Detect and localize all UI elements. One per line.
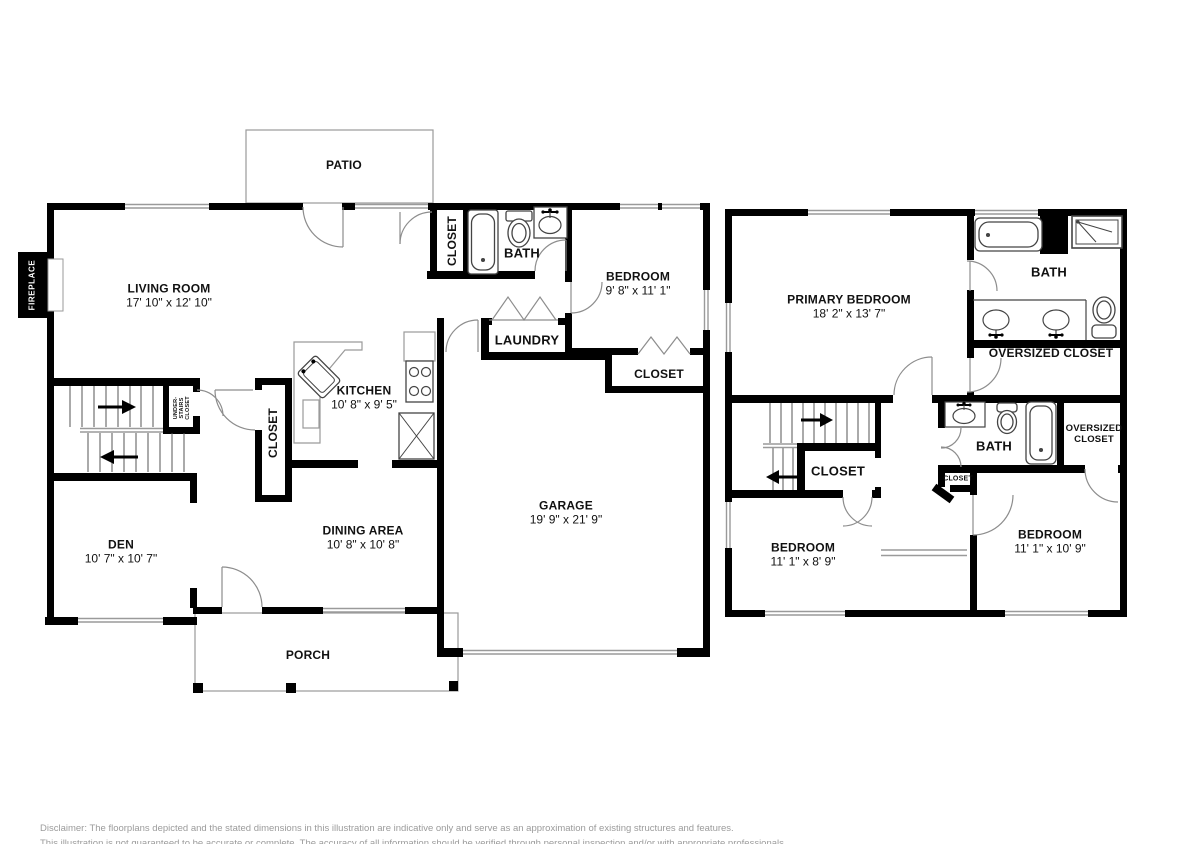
room-label-bedroom-right: BEDROOM 11' 1" x 10' 9" [1014, 529, 1086, 556]
bedroom-right-dims: 11' 1" x 10' 9" [1014, 542, 1086, 556]
kitchen-name: KITCHEN [331, 385, 397, 399]
living-room-dims: 17' 10" x 12' 10" [126, 296, 212, 310]
bedroom-left-dims: 11' 1" x 8' 9" [771, 555, 836, 569]
room-label-bedroom-closet: CLOSET [634, 367, 684, 381]
room-label-living-room: LIVING ROOM 17' 10" x 12' 10" [126, 283, 212, 310]
refrigerator-icon [399, 413, 434, 459]
room-label-porch: PORCH [286, 648, 330, 662]
disclaimer-line-2: This illustration is not guaranteed to b… [40, 838, 787, 844]
room-label-bedroom-left: BEDROOM 11' 1" x 8' 9" [771, 542, 836, 569]
room-label-under-stairs-closet: UNDER- STAIRS CLOSET [173, 396, 191, 420]
primary-bedroom-dims: 18' 2" x 13' 7" [787, 307, 911, 321]
living-room-name: LIVING ROOM [126, 283, 212, 297]
room-label-garage: GARAGE 19' 9" x 21' 9" [530, 500, 602, 527]
garage-name: GARAGE [530, 500, 602, 514]
room-label-primary-bath: BATH [1031, 265, 1067, 280]
bath2-tub-icon [1026, 402, 1056, 464]
dining-name: DINING AREA [322, 525, 403, 539]
disclaimer-line-1: Disclaimer: The floorplans depicted and … [40, 823, 734, 834]
bedroom-right-name: BEDROOM [1014, 529, 1086, 543]
first-floor-plan [18, 130, 710, 693]
room-label-bath-1f: BATH [504, 246, 540, 261]
room-label-laundry: LAUNDRY [495, 333, 559, 348]
kitchen-dims: 10' 8" x 9' 5" [331, 398, 397, 412]
room-label-bedroom-1f: BEDROOM 9' 8" x 11' 1" [606, 271, 671, 298]
bath2-sink-icon [945, 402, 985, 427]
primary-toilet-icon [1092, 297, 1116, 338]
garage-dims: 19' 9" x 21' 9" [530, 513, 602, 527]
den-name: DEN [85, 539, 157, 553]
vanity-double-sink [973, 300, 1086, 340]
oversized2-line2: CLOSET [1066, 434, 1123, 445]
oversized2-line1: OVERSIZED [1066, 423, 1123, 434]
room-label-den: DEN 10' 7" x 10' 7" [85, 539, 157, 566]
room-label-small-closet: CLOSET [943, 476, 973, 483]
floorplan-graphics [0, 0, 1193, 844]
stairs-down-arrow [100, 450, 138, 464]
bedroom-1f-dims: 9' 8" x 11' 1" [606, 284, 671, 298]
room-label-dining-area: DINING AREA 10' 8" x 10' 8" [322, 525, 403, 552]
fireplace-label: FIREPLACE [28, 260, 37, 311]
bath2-toilet-icon [997, 403, 1017, 434]
sink-icon [534, 207, 567, 238]
room-label-oversized-closet: OVERSIZED CLOSET [989, 346, 1114, 360]
room-label-patio: PATIO [326, 158, 362, 172]
room-label-bath-2f: BATH [976, 439, 1012, 454]
room-label-pantry-closet: CLOSET [266, 408, 280, 458]
shower-icon [1072, 216, 1122, 248]
primary-bedroom-name: PRIMARY BEDROOM [787, 294, 911, 308]
bedroom-1f-name: BEDROOM [606, 271, 671, 285]
bathtub-icon [468, 210, 498, 274]
under-stairs-line3: CLOSET [185, 396, 191, 420]
toilet-icon [506, 211, 532, 247]
room-label-bedroom-oversized-closet: OVERSIZED CLOSET [1066, 423, 1123, 445]
room-label-primary-bedroom: PRIMARY BEDROOM 18' 2" x 13' 7" [787, 294, 911, 321]
stairs-up-arrow-2f [801, 413, 833, 427]
dining-dims: 10' 8" x 10' 8" [322, 538, 403, 552]
primary-bathtub-icon [975, 218, 1042, 251]
den-dims: 10' 7" x 10' 7" [85, 552, 157, 566]
room-label-hall-closet-2f: CLOSET [811, 464, 865, 479]
stove-icon [406, 361, 433, 402]
room-label-hall-closet: CLOSET [445, 216, 459, 266]
stairs-down-arrow-2f [766, 470, 797, 484]
bedroom-left-name: BEDROOM [771, 542, 836, 556]
room-label-kitchen: KITCHEN 10' 8" x 9' 5" [331, 385, 397, 412]
floorplan-page: PATIO LIVING ROOM 17' 10" x 12' 10" FIRE… [0, 0, 1193, 844]
